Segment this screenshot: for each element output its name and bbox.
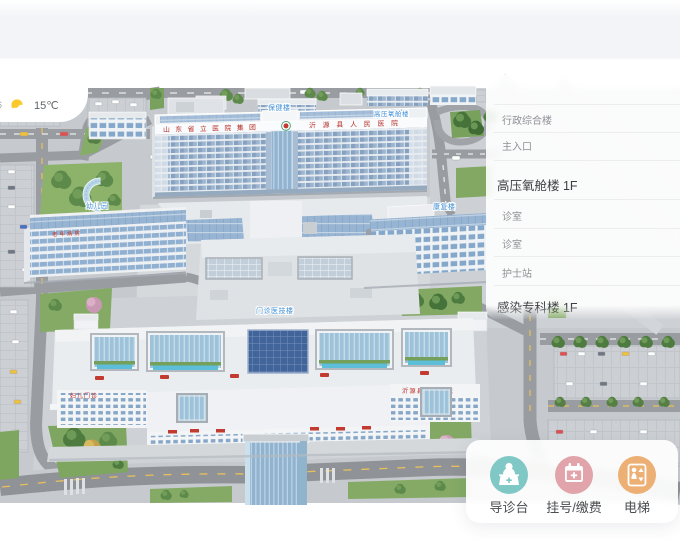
svg-text:康复楼: 康复楼 (433, 202, 456, 211)
svg-text:幼儿园: 幼儿园 (86, 201, 109, 210)
svg-text:保健楼: 保健楼 (268, 103, 291, 112)
svg-text:高压氧舱楼: 高压氧舱楼 (374, 109, 409, 118)
svg-text:妇儿门诊: 妇儿门诊 (70, 392, 98, 400)
svg-text:门诊医技楼: 门诊医技楼 (256, 306, 294, 315)
